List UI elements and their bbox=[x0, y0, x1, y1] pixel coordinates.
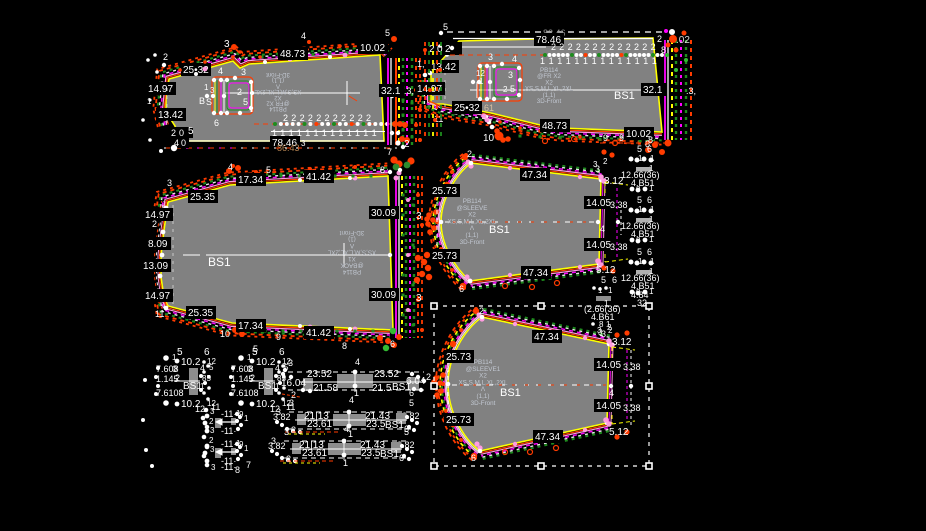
svg-text:5: 5 bbox=[443, 22, 448, 32]
svg-text:23.5: 23.5 bbox=[366, 419, 386, 430]
svg-text:4: 4 bbox=[344, 424, 349, 434]
svg-text:5: 5 bbox=[601, 275, 606, 285]
svg-text:0: 0 bbox=[179, 128, 184, 138]
svg-text:2: 2 bbox=[576, 42, 581, 52]
svg-text:41.42: 41.42 bbox=[306, 172, 331, 183]
svg-text:2: 2 bbox=[601, 42, 606, 52]
svg-text:B: B bbox=[199, 96, 205, 106]
svg-text:6: 6 bbox=[459, 284, 464, 294]
svg-text:2: 2 bbox=[445, 44, 451, 55]
svg-text:1: 1 bbox=[592, 56, 597, 66]
svg-text:2: 2 bbox=[608, 326, 613, 335]
svg-text:11: 11 bbox=[155, 309, 164, 319]
svg-text:2: 2 bbox=[171, 128, 176, 138]
svg-text:1: 1 bbox=[649, 287, 654, 296]
svg-text:0: 0 bbox=[181, 138, 186, 148]
svg-text:41.42: 41.42 bbox=[306, 328, 331, 339]
svg-text:1: 1 bbox=[583, 56, 588, 66]
svg-text:1: 1 bbox=[557, 56, 562, 66]
svg-text:5: 5 bbox=[637, 195, 642, 205]
svg-text:30.09: 30.09 bbox=[371, 208, 396, 219]
svg-text:.02: .02 bbox=[676, 35, 690, 46]
svg-text:.3,: .3, bbox=[686, 86, 696, 96]
svg-text:8: 8 bbox=[636, 185, 641, 194]
svg-text:3.38: 3.38 bbox=[623, 403, 641, 413]
svg-text:BS1: BS1 bbox=[385, 420, 404, 431]
svg-text:1: 1 bbox=[244, 414, 249, 423]
svg-text:1: 1 bbox=[330, 128, 335, 138]
svg-text:1: 1 bbox=[650, 154, 655, 163]
svg-text:1: 1 bbox=[305, 128, 310, 138]
svg-text:BS1: BS1 bbox=[489, 224, 510, 236]
svg-text:1: 1 bbox=[652, 56, 657, 66]
svg-text:13.42: 13.42 bbox=[431, 62, 456, 73]
svg-text:1: 1 bbox=[638, 257, 643, 266]
svg-text:47.34: 47.34 bbox=[522, 170, 547, 181]
svg-text:3: 3 bbox=[416, 211, 422, 222]
svg-text:2: 2 bbox=[366, 113, 371, 123]
svg-text:3: 3 bbox=[210, 426, 215, 435]
svg-text:30.09: 30.09 bbox=[371, 290, 396, 301]
svg-text:2: 2 bbox=[626, 42, 631, 52]
svg-text:3: 3 bbox=[288, 358, 293, 368]
svg-text:6: 6 bbox=[612, 275, 617, 285]
svg-text:5: 5 bbox=[510, 84, 515, 94]
svg-text:3.38: 3.38 bbox=[610, 200, 628, 210]
svg-text:9: 9 bbox=[276, 332, 281, 342]
svg-text:1: 1 bbox=[244, 444, 249, 453]
svg-text:1: 1 bbox=[643, 56, 648, 66]
svg-text:21.58: 21.58 bbox=[313, 383, 338, 394]
svg-text:5: 5 bbox=[188, 126, 194, 137]
svg-text:47.34: 47.34 bbox=[523, 268, 548, 279]
svg-text:2: 2 bbox=[237, 87, 242, 97]
svg-text:7: 7 bbox=[246, 460, 251, 470]
svg-text:BS1: BS1 bbox=[380, 449, 399, 460]
svg-text:14.97: 14.97 bbox=[148, 84, 173, 95]
svg-text:4: 4 bbox=[228, 162, 233, 172]
svg-text:1: 1 bbox=[649, 235, 654, 244]
svg-text:1: 1 bbox=[347, 128, 352, 138]
svg-text:1: 1 bbox=[247, 353, 252, 362]
svg-text:14.97: 14.97 bbox=[145, 291, 170, 302]
svg-text:2: 2 bbox=[333, 113, 338, 123]
svg-text:2: 2 bbox=[551, 42, 556, 52]
svg-text:13.42: 13.42 bbox=[158, 110, 183, 121]
svg-text:6: 6 bbox=[390, 339, 395, 349]
svg-text:17.34: 17.34 bbox=[238, 175, 263, 186]
svg-text:1: 1 bbox=[172, 353, 177, 362]
svg-text:2: 2 bbox=[568, 42, 573, 52]
svg-text:2: 2 bbox=[651, 42, 656, 52]
svg-text:7.6108: 7.6108 bbox=[231, 388, 259, 398]
svg-text:2: 2 bbox=[467, 149, 472, 159]
svg-text:2: 2 bbox=[163, 52, 168, 62]
svg-text:1: 1 bbox=[355, 128, 360, 138]
svg-text:BS1: BS1 bbox=[500, 387, 521, 399]
svg-text:7.6108: 7.6108 bbox=[156, 388, 184, 398]
svg-text:1: 1 bbox=[372, 128, 377, 138]
svg-text:6: 6 bbox=[471, 453, 476, 463]
svg-text:2: 2 bbox=[349, 113, 354, 123]
svg-text:2: 2 bbox=[209, 436, 214, 445]
svg-text:25.35: 25.35 bbox=[188, 308, 213, 319]
svg-text:1: 1 bbox=[363, 128, 368, 138]
svg-text:4: 4 bbox=[609, 388, 614, 398]
svg-text:3.38: 3.38 bbox=[610, 242, 628, 252]
svg-text:3: 3 bbox=[210, 445, 215, 454]
svg-text:2: 2 bbox=[250, 373, 255, 383]
svg-text:14.05: 14.05 bbox=[596, 360, 621, 371]
svg-text:1: 1 bbox=[626, 56, 631, 66]
svg-text:17.34: 17.34 bbox=[238, 321, 263, 332]
svg-text:1: 1 bbox=[566, 56, 571, 66]
svg-text:3: 3 bbox=[508, 70, 513, 80]
svg-text:2: 2 bbox=[503, 85, 508, 94]
svg-text:-11·: -11· bbox=[221, 439, 236, 449]
svg-text:8: 8 bbox=[342, 341, 347, 351]
svg-text:BS1: BS1 bbox=[614, 90, 635, 102]
svg-text:1,: 1, bbox=[417, 59, 425, 69]
svg-text:25•32: 25•32 bbox=[454, 103, 480, 114]
svg-text:2: 2 bbox=[175, 373, 180, 383]
svg-text:6: 6 bbox=[214, 118, 219, 128]
svg-text:3: 3 bbox=[210, 86, 215, 95]
svg-text:1: 1 bbox=[638, 205, 643, 214]
svg-text:7: 7 bbox=[387, 147, 392, 157]
svg-text:3D-Front: 3D-Front bbox=[537, 98, 562, 105]
svg-text:32.1: 32.1 bbox=[643, 85, 663, 96]
svg-text:6: 6 bbox=[647, 144, 652, 154]
svg-text:3D-Front: 3D-Front bbox=[266, 71, 290, 77]
svg-text:5: 5 bbox=[637, 144, 642, 154]
svg-text:1: 1 bbox=[635, 56, 640, 66]
svg-text:23.52: 23.52 bbox=[374, 369, 399, 380]
svg-text:.3,: .3, bbox=[404, 86, 414, 96]
svg-text:9: 9 bbox=[603, 133, 608, 143]
svg-text:3: 3 bbox=[211, 463, 216, 472]
svg-text:1: 1 bbox=[540, 56, 545, 66]
svg-text:2: 2 bbox=[283, 113, 288, 123]
svg-text:2: 2 bbox=[479, 306, 484, 316]
svg-text:14.05: 14.05 bbox=[586, 240, 611, 251]
svg-text:5: 5 bbox=[409, 398, 414, 408]
svg-text:10.02: 10.02 bbox=[360, 43, 385, 54]
svg-text:8: 8 bbox=[636, 236, 641, 245]
svg-text:5: 5 bbox=[404, 427, 409, 437]
svg-text:10: 10 bbox=[220, 329, 230, 339]
svg-text:2: 2 bbox=[404, 139, 410, 150]
svg-text:1: 1 bbox=[598, 286, 603, 295]
svg-text:2: 2 bbox=[584, 42, 589, 52]
svg-text:3: 3 bbox=[210, 407, 215, 416]
svg-text:47.34: 47.34 bbox=[535, 432, 560, 443]
svg-text:23.5: 23.5 bbox=[361, 448, 381, 459]
svg-text:1: 1 bbox=[649, 184, 654, 193]
svg-text:3: 3 bbox=[241, 67, 246, 77]
svg-text:48.73: 48.73 bbox=[280, 49, 305, 60]
svg-text:4: 4 bbox=[355, 357, 360, 367]
svg-text:61: 61 bbox=[484, 103, 494, 113]
svg-text:78.46: 78.46 bbox=[536, 35, 561, 46]
svg-text:13.09: 13.09 bbox=[143, 261, 168, 272]
svg-text:25.73: 25.73 bbox=[432, 251, 457, 262]
svg-text:25.73: 25.73 bbox=[446, 352, 471, 363]
svg-text:2: 2 bbox=[300, 113, 305, 123]
svg-text:16.04: 16.04 bbox=[281, 378, 306, 389]
svg-text:2: 2 bbox=[609, 42, 614, 52]
svg-text:21.5: 21.5 bbox=[372, 383, 392, 394]
svg-text:4: 4 bbox=[600, 224, 605, 234]
svg-text:1: 1 bbox=[549, 56, 554, 66]
svg-text:2: 2 bbox=[341, 113, 346, 123]
svg-text:2: 2 bbox=[316, 113, 321, 123]
svg-text:3D-Front: 3D-Front bbox=[460, 239, 485, 246]
svg-text:23.61: 23.61 bbox=[307, 419, 332, 430]
svg-text:8: 8 bbox=[380, 165, 385, 175]
svg-text:-11·: -11· bbox=[221, 409, 236, 419]
svg-text:2: 2 bbox=[603, 157, 608, 166]
svg-text:5: 5 bbox=[385, 28, 390, 38]
svg-text:5: 5 bbox=[209, 363, 214, 372]
svg-text:4: 4 bbox=[301, 31, 306, 41]
svg-text:2: 2 bbox=[358, 113, 363, 123]
svg-text:1: 1 bbox=[617, 56, 622, 66]
svg-text:14.97: 14.97 bbox=[145, 210, 170, 221]
svg-text:5: 5 bbox=[637, 247, 642, 257]
svg-text:8.09: 8.09 bbox=[148, 239, 168, 250]
svg-text:1: 1 bbox=[343, 458, 348, 468]
svg-text:2: 2 bbox=[657, 34, 662, 44]
svg-text:1: 1 bbox=[314, 128, 319, 138]
svg-text:2: 2 bbox=[209, 417, 214, 426]
svg-text:6: 6 bbox=[647, 195, 652, 205]
svg-text:1: 1 bbox=[650, 205, 655, 214]
svg-text:6: 6 bbox=[647, 247, 652, 257]
svg-text:1: 1 bbox=[574, 56, 579, 66]
svg-text:2: 2 bbox=[617, 42, 622, 52]
svg-text:12: 12 bbox=[195, 404, 205, 414]
svg-text:2: 2 bbox=[152, 219, 157, 229]
svg-text:3: 3 bbox=[224, 39, 230, 50]
svg-text:23.52: 23.52 bbox=[307, 369, 332, 380]
svg-text:1: 1 bbox=[338, 128, 343, 138]
svg-text:14.05: 14.05 bbox=[596, 401, 621, 412]
svg-text:3: 3 bbox=[416, 293, 422, 304]
svg-text:3: 3 bbox=[488, 52, 493, 62]
svg-text:3: 3 bbox=[167, 178, 172, 188]
svg-text:5.12: 5.12 bbox=[609, 427, 629, 438]
svg-text:2: 2 bbox=[426, 372, 431, 382]
svg-text:1: 1 bbox=[322, 128, 327, 138]
svg-text:2: 2 bbox=[291, 113, 296, 123]
svg-text:9: 9 bbox=[619, 133, 624, 143]
svg-text:3: 3 bbox=[301, 139, 306, 148]
svg-text:2: 2 bbox=[308, 113, 313, 123]
svg-text:3: 3 bbox=[593, 160, 598, 169]
svg-text:3: 3 bbox=[284, 427, 289, 437]
svg-text:5: 5 bbox=[266, 165, 271, 175]
svg-text:2: 2 bbox=[593, 42, 598, 52]
svg-text:8: 8 bbox=[235, 465, 240, 475]
svg-text:3D-Front: 3D-Front bbox=[340, 229, 365, 236]
svg-text:4: 4 bbox=[218, 66, 223, 76]
svg-text:BS1: BS1 bbox=[208, 255, 231, 269]
svg-text:10.2: 10.2 bbox=[256, 357, 276, 368]
svg-text:10: 10 bbox=[483, 133, 495, 144]
svg-text:-11·: -11· bbox=[221, 426, 236, 436]
svg-text:5: 5 bbox=[243, 97, 248, 107]
svg-text:3: 3 bbox=[289, 398, 294, 408]
svg-text:2: 2 bbox=[559, 42, 564, 52]
svg-text:1: 1 bbox=[600, 56, 605, 66]
svg-text:3.38: 3.38 bbox=[623, 362, 641, 372]
svg-text:32.1: 32.1 bbox=[381, 86, 401, 97]
svg-text:1: 1 bbox=[638, 154, 643, 163]
svg-text:2: 2 bbox=[325, 113, 330, 123]
svg-text:2: 2 bbox=[642, 42, 647, 52]
svg-text:47.34: 47.34 bbox=[534, 332, 559, 343]
svg-text:3.12: 3.12 bbox=[612, 337, 632, 348]
svg-text:25.73: 25.73 bbox=[432, 186, 457, 197]
svg-text:1: 1 bbox=[204, 83, 209, 92]
svg-text:3: 3 bbox=[598, 328, 603, 337]
svg-text:8: 8 bbox=[661, 45, 666, 55]
svg-text:48.73: 48.73 bbox=[542, 121, 567, 132]
svg-text:S: S bbox=[206, 97, 212, 107]
svg-text:1: 1 bbox=[608, 286, 613, 295]
svg-text:4: 4 bbox=[349, 395, 354, 405]
svg-text:2: 2 bbox=[634, 42, 639, 52]
svg-text:14.05: 14.05 bbox=[586, 198, 611, 209]
svg-text:4.84: 4.84 bbox=[631, 290, 649, 300]
svg-text:3D-Front: 3D-Front bbox=[471, 400, 496, 407]
svg-text:23.61: 23.61 bbox=[302, 448, 327, 459]
svg-text:1: 1 bbox=[609, 56, 614, 66]
svg-text:10.2: 10.2 bbox=[181, 357, 201, 368]
svg-text:1: 1 bbox=[479, 77, 484, 86]
svg-text:1: 1 bbox=[650, 257, 655, 266]
svg-text:25.73: 25.73 bbox=[446, 415, 471, 426]
svg-text:25.35: 25.35 bbox=[190, 192, 215, 203]
